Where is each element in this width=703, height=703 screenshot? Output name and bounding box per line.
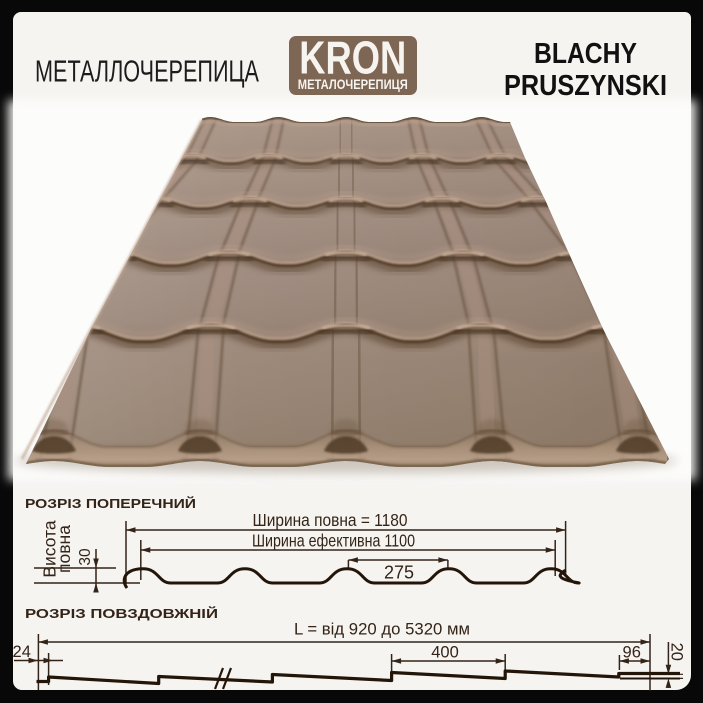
svg-text:РОЗРІЗ ПОВЗДОВЖНІЙ: РОЗРІЗ ПОВЗДОВЖНІЙ	[25, 606, 218, 621]
svg-text:400: 400	[431, 643, 459, 661]
svg-text:20: 20	[667, 643, 685, 661]
svg-text:РОЗРІЗ ПОПЕРЕЧНИЙ: РОЗРІЗ ПОПЕРЕЧНИЙ	[25, 496, 196, 511]
svg-text:96: 96	[623, 643, 641, 661]
svg-text:Ширина повна = 1180: Ширина повна = 1180	[253, 510, 408, 530]
svg-text:МЕТАЛОЧЕРЕПИЦЯ: МЕТАЛОЧЕРЕПИЦЯ	[298, 77, 408, 92]
svg-text:L = від 920 до 5320 мм: L = від 920 до 5320 мм	[294, 620, 470, 639]
svg-text:KRON: KRON	[299, 32, 406, 84]
svg-text:BLACHY: BLACHY	[534, 38, 637, 70]
svg-text:275: 275	[384, 563, 414, 583]
svg-text:24: 24	[13, 643, 31, 661]
svg-text:МЕТАЛЛОЧЕРЕПИЦА: МЕТАЛЛОЧЕРЕПИЦА	[35, 54, 259, 89]
svg-text:PRUSZYNSKI: PRUSZYNSKI	[504, 70, 667, 102]
svg-text:Ширина ефективна 1100: Ширина ефективна 1100	[252, 530, 415, 550]
svg-text:повна: повна	[54, 525, 74, 573]
svg-text:30: 30	[77, 548, 94, 566]
